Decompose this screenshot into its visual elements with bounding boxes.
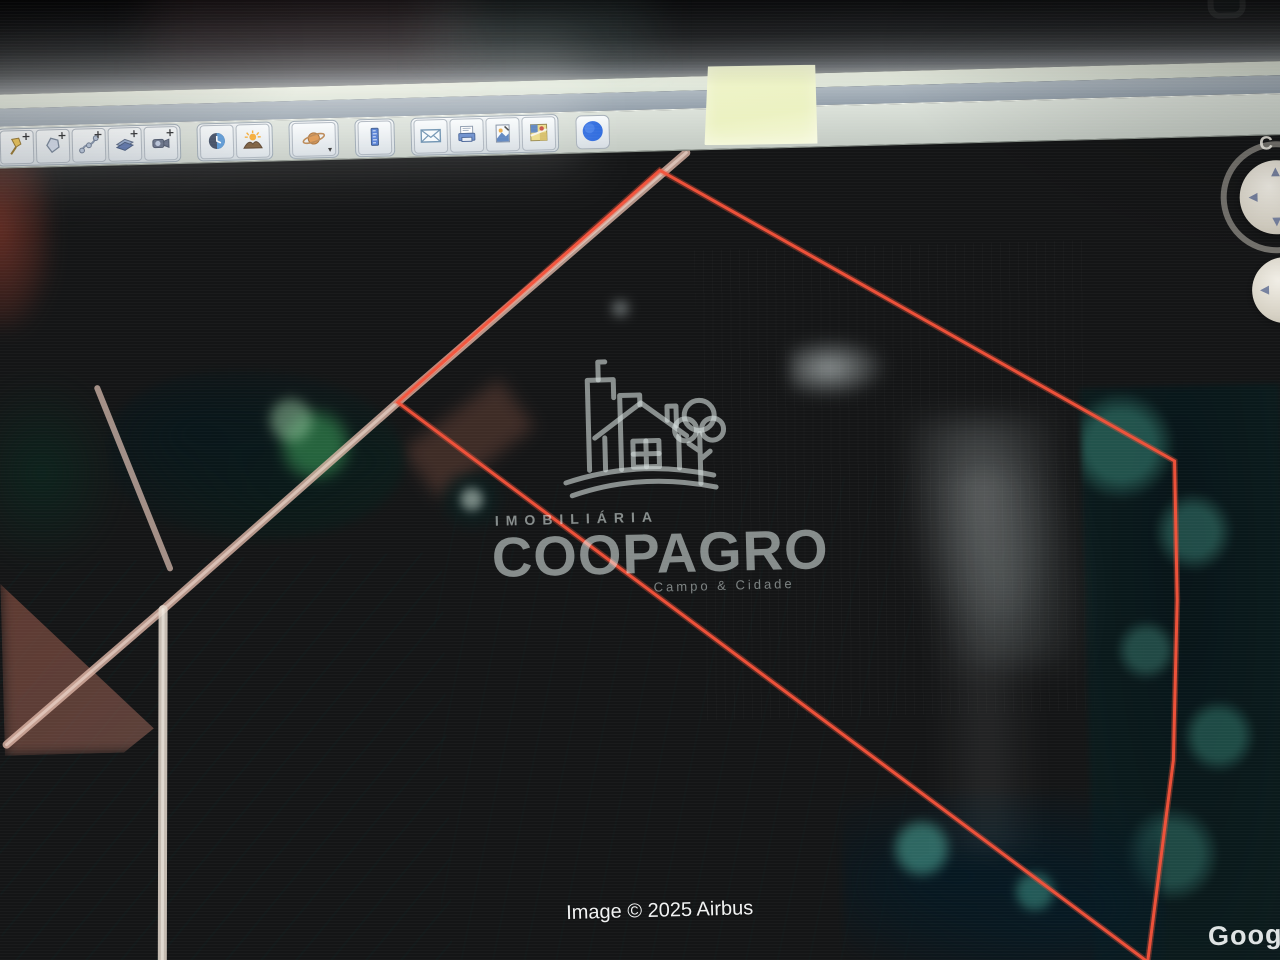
look-down-arrow-icon[interactable]: ▼	[1269, 214, 1280, 229]
save-image-icon	[491, 122, 514, 148]
historical-imagery-icon	[206, 129, 229, 155]
coopagro-watermark: IMOBILIÁRIA COOPAGRO Campo & Cidade	[487, 353, 813, 599]
email-icon	[418, 124, 443, 150]
planets-button[interactable]: ▾	[291, 122, 336, 157]
globe-button[interactable]	[575, 115, 610, 150]
view-in-google-maps-button[interactable]	[521, 116, 556, 151]
nav-glyph-partial: C	[1259, 135, 1273, 156]
bezel-camera-dot	[1213, 0, 1240, 13]
add-polygon-button[interactable]: +	[35, 129, 70, 164]
look-up-arrow-icon[interactable]: ▲	[1268, 164, 1280, 179]
toolbar-group-measure	[354, 118, 395, 157]
record-tour-button[interactable]: +	[143, 126, 178, 161]
historical-imagery-button[interactable]	[199, 125, 234, 160]
email-button[interactable]	[413, 119, 448, 154]
ruler-icon	[363, 125, 386, 151]
toolbar-group-time	[196, 121, 273, 161]
google-maps-icon	[527, 121, 550, 147]
sunlight-button[interactable]	[235, 124, 270, 159]
sticky-note	[703, 63, 818, 147]
photographed-screen: 3 +	[0, 0, 1280, 960]
move-left-arrow-icon[interactable]: ◄	[1257, 282, 1272, 297]
satellite-map-view[interactable]: IMOBILIÁRIA COOPAGRO Campo & Cidade Imag…	[0, 135, 1280, 960]
toolbar-group-create: + +	[0, 124, 181, 167]
ruler-button[interactable]	[357, 120, 392, 155]
add-image-overlay-button[interactable]: +	[107, 127, 142, 162]
globe-icon	[580, 118, 605, 146]
toolbar-group-planets: ▾	[288, 120, 339, 159]
imagery-attribution: Image © 2025 Airbus	[566, 897, 754, 925]
toolbar-group-output	[410, 114, 559, 156]
add-placemark-button[interactable]: +	[0, 130, 34, 165]
screen-content: 3 +	[0, 0, 1280, 960]
coopagro-logo-icon	[535, 354, 739, 509]
add-path-button[interactable]: +	[71, 128, 106, 163]
look-left-arrow-icon[interactable]: ◄	[1245, 190, 1260, 205]
save-image-button[interactable]	[485, 117, 520, 152]
print-icon	[455, 123, 478, 149]
dropdown-arrow-icon: ▾	[328, 145, 332, 154]
print-button[interactable]	[449, 118, 484, 153]
google-logo-partial: Goog	[1208, 919, 1280, 952]
sun-icon	[242, 128, 265, 154]
saturn-icon	[301, 127, 328, 153]
